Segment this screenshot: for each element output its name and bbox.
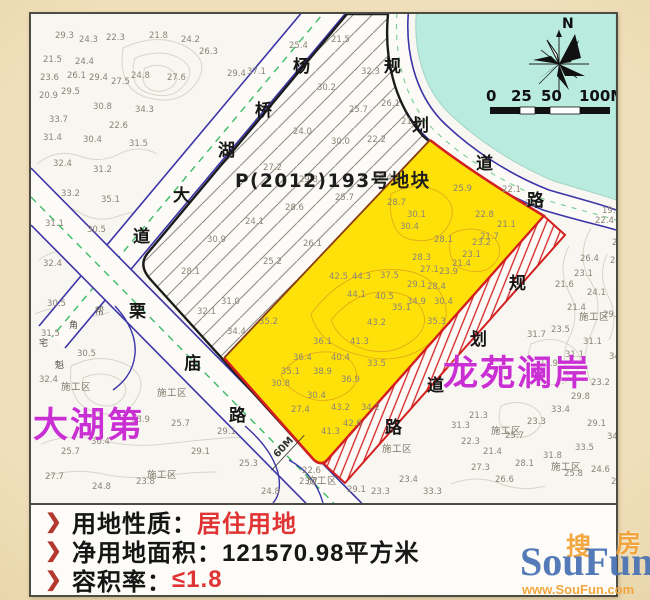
elevation-mark: 29.5 <box>61 87 80 97</box>
elevation-mark: 34.4 <box>227 327 246 337</box>
construction-zone-label: 施工区 <box>307 475 337 487</box>
elevation-mark: 31.5 <box>129 139 148 149</box>
elevation-mark: 23.6 <box>40 73 59 83</box>
construction-zone-label: 施工区 <box>157 387 187 399</box>
elevation-mark: 35.2 <box>259 317 278 327</box>
elevation-mark: 30.5 <box>77 349 96 359</box>
elevation-mark: 34.1 <box>609 352 616 362</box>
elevation-mark: 22.8 <box>475 210 494 220</box>
elevation-mark: 30.2 <box>317 83 336 93</box>
elevation-mark: 30.4 <box>400 222 419 232</box>
elevation-mark: 37.5 <box>380 271 399 281</box>
elevation-mark: 27.7 <box>45 472 64 482</box>
elevation-mark: 42.5 <box>329 272 348 282</box>
elevation-mark: 21.6 <box>555 280 574 290</box>
elevation-mark: 34.3 <box>135 105 154 115</box>
elevation-mark: 44.1 <box>347 290 366 300</box>
elevation-mark: 23.4 <box>399 475 418 485</box>
elevation-mark: 25.7 <box>61 447 80 457</box>
map-glyph: 帮 <box>95 305 104 317</box>
compass-north-label: N <box>562 16 574 32</box>
elevation-mark: 31.5 <box>41 329 60 339</box>
elevation-mark: 24.1 <box>245 217 264 227</box>
svg-text:杨: 杨 <box>293 56 310 77</box>
elevation-mark: 43.2 <box>367 318 386 328</box>
elevation-mark: 27.6 <box>167 73 186 83</box>
elevation-mark: 28.6 <box>285 203 304 213</box>
elevation-mark: 35.1 <box>281 367 300 377</box>
elevation-mark: 31.1 <box>583 337 602 347</box>
elevation-mark: 22.2 <box>367 135 386 145</box>
elevation-mark: 19.3 <box>602 206 616 216</box>
elevation-mark: 25.7 <box>349 105 368 115</box>
elevation-mark: 31.1 <box>45 219 64 229</box>
svg-text:0: 0 <box>486 87 496 105</box>
svg-text:道: 道 <box>133 226 150 247</box>
elevation-mark: 22.6 <box>109 121 128 131</box>
elevation-mark: 29.1 <box>407 280 426 290</box>
elevation-mark: 29.8 <box>571 392 590 402</box>
elevation-mark: 31.7 <box>527 330 546 340</box>
elevation-mark: 21.8 <box>149 31 168 41</box>
elevation-mark: 31.4 <box>43 133 62 143</box>
chevron-bullet-icon: ❯ <box>45 538 72 563</box>
svg-text:规: 规 <box>384 57 401 77</box>
elevation-mark: 23.1 <box>574 269 593 279</box>
elevation-mark: 30.0 <box>331 137 350 147</box>
construction-zone-label: 施工区 <box>491 425 521 437</box>
elevation-mark: 20.9 <box>39 91 58 101</box>
elevation-mark: 33.2 <box>61 189 80 199</box>
net-area-value: 121570.98平方米 <box>222 533 419 568</box>
elevation-mark: 33.7 <box>49 115 68 125</box>
elevation-mark: 22.3 <box>106 33 125 43</box>
elevation-mark: 26.3 <box>199 47 218 57</box>
elevation-mark: 41.3 <box>321 427 340 437</box>
elevation-mark: 33.4 <box>551 405 570 415</box>
construction-zone-label: 施工区 <box>147 469 177 481</box>
elevation-mark: 27.5 <box>111 77 130 87</box>
area-label-longyuanlanan: 龙苑澜岸 <box>443 356 591 391</box>
elevation-mark: 30.5 <box>87 225 106 235</box>
elevation-mark: 32.3 <box>361 67 380 77</box>
elevation-mark: 31.2 <box>93 165 112 175</box>
svg-text:划: 划 <box>470 329 487 350</box>
svg-text:道: 道 <box>427 375 444 396</box>
elevation-mark: 29.1 <box>587 419 606 429</box>
construction-zone-label: 施工区 <box>61 381 91 393</box>
svg-text:规: 规 <box>509 274 526 294</box>
elevation-mark: 37.1 <box>247 67 266 77</box>
elevation-mark: 25.9 <box>453 184 472 194</box>
svg-text:湖: 湖 <box>218 141 235 161</box>
elevation-mark: 23.3 <box>527 417 546 427</box>
elevation-mark: 32.4 <box>39 375 58 385</box>
svg-text:栗: 栗 <box>129 302 146 322</box>
elevation-mark: 21.1 <box>497 220 516 230</box>
svg-text:50: 50 <box>541 87 562 105</box>
area-label-dahudi: 大湖第 <box>33 408 144 443</box>
svg-text:100M: 100M <box>579 87 616 105</box>
elevation-mark: 29.3 <box>55 31 74 41</box>
elevation-mark: 35.3 <box>427 317 446 327</box>
elevation-mark: 24.2 <box>181 35 200 45</box>
elevation-mark: 32.1 <box>197 307 216 317</box>
elevation-mark: 26.1 <box>303 239 322 249</box>
elevation-mark: 24.1 <box>587 288 606 298</box>
soufun-watermark: 搜 房 SouFun www.SouFun.com <box>520 524 650 594</box>
elevation-mark: 30.4 <box>83 135 102 145</box>
elevation-mark: 24.8 <box>92 482 111 492</box>
elevation-mark: 42.6 <box>343 419 362 429</box>
elevation-mark: 26.1 <box>381 99 400 109</box>
elevation-mark: 24.8 <box>610 256 616 266</box>
elevation-mark: 29.1 <box>347 485 366 495</box>
elevation-mark: 38.9 <box>313 367 332 377</box>
elevation-mark: 31.3 <box>451 421 470 431</box>
elevation-mark: 29.4 <box>89 73 108 83</box>
elevation-mark: 36.9 <box>341 375 360 385</box>
elevation-mark: 30.9 <box>207 235 226 245</box>
elevation-mark: 36.1 <box>313 337 332 347</box>
elevation-mark: 23.5 <box>551 325 570 335</box>
elevation-mark: 28.7 <box>387 198 406 208</box>
elevation-mark: 25.3 <box>239 459 258 469</box>
elevation-mark: 30.4 <box>307 391 326 401</box>
elevation-mark: 32.4 <box>43 259 62 269</box>
elevation-mark: 29.4 <box>227 69 246 79</box>
elevation-mark: 23.9 <box>439 267 458 277</box>
elevation-mark: 31.8 <box>543 451 562 461</box>
svg-text:25: 25 <box>511 87 532 105</box>
elevation-mark: 24.6 <box>591 465 610 475</box>
elevation-mark: 24.3 <box>79 35 98 45</box>
elevation-mark: 30.1 <box>407 210 426 220</box>
elevation-mark: 21.5 <box>43 55 62 65</box>
elevation-mark: 28.3 <box>412 253 431 263</box>
elevation-mark: 25.7 <box>171 419 190 429</box>
svg-text:划: 划 <box>412 115 429 136</box>
svg-text:大: 大 <box>173 185 190 206</box>
elevation-mark: 29.1 <box>191 447 210 457</box>
elevation-mark: 24.4 <box>75 57 94 67</box>
elevation-mark: 28.1 <box>434 235 453 245</box>
elevation-mark: 24.8 <box>131 71 150 81</box>
elevation-mark: 22.1 <box>502 185 521 195</box>
elevation-mark: 22.1 <box>612 238 616 248</box>
construction-zone-label: 施工区 <box>382 443 412 455</box>
elevation-mark: 24.8 <box>261 487 280 497</box>
elevation-mark: 28.1 <box>181 267 200 277</box>
elevation-mark: 33.5 <box>367 359 386 369</box>
elevation-mark: 44.3 <box>352 272 371 282</box>
elevation-mark: 29.1 <box>217 427 236 437</box>
parcel-label: P(2012)193号地块 <box>235 170 431 192</box>
elevation-mark: 33.5 <box>575 443 594 453</box>
elevation-mark: 28.7 <box>611 477 616 487</box>
elevation-mark: 40.5 <box>375 292 394 302</box>
elevation-mark: 31.0 <box>221 297 240 307</box>
elevation-mark: 28.4 <box>427 282 446 292</box>
svg-text:道: 道 <box>476 153 493 174</box>
chevron-bullet-icon: ❯ <box>45 567 72 592</box>
map-glyph: 魁 <box>55 359 64 371</box>
map-document-frame: 29.324.322.321.824.226.321.524.423.626.1… <box>29 12 618 597</box>
elevation-mark: 27.3 <box>471 463 490 473</box>
construction-zone-label: 施工区 <box>551 461 581 473</box>
elevation-mark: 32.4 <box>53 159 72 169</box>
elevation-mark: 43.2 <box>331 403 350 413</box>
elevation-mark: 23.2 <box>591 378 610 388</box>
elevation-mark: 30.8 <box>271 379 290 389</box>
elevation-mark: 28.1 <box>515 459 534 469</box>
elevation-mark: 30.5 <box>47 299 66 309</box>
elevation-mark: 40.4 <box>331 353 350 363</box>
elevation-mark: 23.2 <box>472 238 491 248</box>
svg-text:路: 路 <box>527 190 545 211</box>
elevation-mark: 21.3 <box>469 411 488 421</box>
elevation-mark: 22.4 <box>595 216 614 226</box>
map-glyph: 宅 <box>39 337 48 349</box>
elevation-mark: 27.4 <box>291 405 310 415</box>
elevation-mark: 34.2 <box>361 403 380 413</box>
plot-ratio-label: 容积率： <box>72 562 172 597</box>
elevation-mark: 41.3 <box>350 337 369 347</box>
elevation-mark: 30.4 <box>434 297 453 307</box>
watermark-url: www.SouFun.com <box>522 582 634 597</box>
elevation-mark: 30.8 <box>93 102 112 112</box>
elevation-mark: 22.6 <box>302 466 321 476</box>
planning-map: 29.324.322.321.824.226.321.524.423.626.1… <box>31 14 616 503</box>
elevation-mark: 35.1 <box>392 303 411 313</box>
elevation-mark: 22.3 <box>461 437 480 447</box>
elevation-mark: 24.0 <box>293 127 312 137</box>
svg-text:路: 路 <box>385 417 403 438</box>
elevation-mark: 36.4 <box>293 353 312 363</box>
elevation-mark: 25.7 <box>335 193 354 203</box>
elevation-mark: 21.5 <box>331 35 350 45</box>
plot-ratio-value: ≤1.8 <box>172 566 223 594</box>
construction-zone-label: 施工区 <box>579 311 609 323</box>
elevation-mark: 33.3 <box>423 487 442 497</box>
map-glyph: 角 <box>69 319 78 331</box>
elevation-mark: 21.4 <box>483 447 502 457</box>
elevation-mark: 23.3 <box>371 487 390 497</box>
elevation-mark: 25.4 <box>289 41 308 51</box>
watermark-logo-text: SouFun <box>520 538 650 585</box>
svg-text:路: 路 <box>229 405 247 426</box>
elevation-mark: 34.6 <box>607 432 616 442</box>
elevation-mark: 35.1 <box>101 195 120 205</box>
svg-text:庙: 庙 <box>184 353 201 374</box>
chevron-bullet-icon: ❯ <box>45 509 72 534</box>
planning-map-page: { "page": {"background": "#e9d6ae"}, "ma… <box>0 0 650 600</box>
elevation-mark: 26.6 <box>495 475 514 485</box>
elevation-mark: 26.4 <box>580 254 599 264</box>
elevation-mark: 26.1 <box>67 71 86 81</box>
svg-text:桥: 桥 <box>255 101 273 121</box>
elevation-mark: 25.2 <box>263 257 282 267</box>
elevation-mark: 27.1 <box>420 265 439 275</box>
